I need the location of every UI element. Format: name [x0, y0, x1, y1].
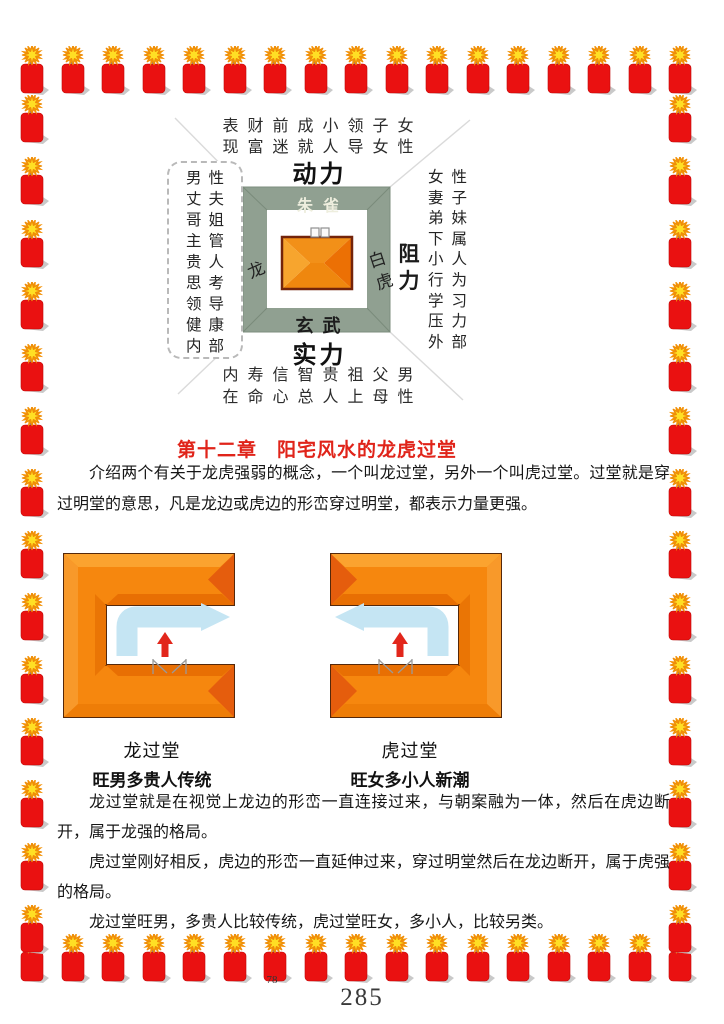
firecracker-icon [381, 46, 415, 96]
firecracker-icon [462, 46, 496, 96]
firecracker-icon [219, 934, 253, 984]
firecracker-icon [624, 934, 658, 984]
firecracker-icon [664, 593, 698, 643]
firecracker-icon [664, 282, 698, 332]
left-attributes-box: 男性 丈夫 哥姐 主管 贵人 思考 领导 健康 内部 [167, 161, 243, 359]
firecracker-icon [381, 934, 415, 984]
firecracker-icon [300, 46, 334, 96]
label-zuli: 阻力 [396, 241, 422, 295]
firecracker-icon [16, 157, 50, 207]
firecracker-icon [664, 344, 698, 394]
right-attribute: 下属 [420, 230, 472, 251]
right-attribute: 行为 [420, 271, 472, 292]
firecracker-icon [340, 934, 374, 984]
paragraph: 龙过堂旺男，多贵人比较传统，虎过堂旺女，多小人，比较另类。 [57, 908, 670, 938]
firecracker-icon [16, 95, 50, 145]
firecracker-icon [16, 282, 50, 332]
house-block [282, 237, 352, 289]
left-attribute: 领导 [169, 294, 241, 315]
left-attribute: 哥姐 [169, 210, 241, 231]
firecracker-icon [502, 46, 536, 96]
right-attribute: 弟妹 [420, 209, 472, 230]
left-attribute: 内部 [169, 336, 241, 357]
compass-bottom-text-line1: 内寿信智贵祖父男 [165, 361, 471, 385]
firecracker-icon [664, 157, 698, 207]
left-attribute: 思考 [169, 273, 241, 294]
right-attributes-list: 女性 妻子 弟妹 下属 小人 行为 学习 压力 外部 [420, 168, 472, 353]
firecracker-icon [583, 934, 617, 984]
firecracker-icon [583, 46, 617, 96]
firecracker-icon [340, 46, 374, 96]
dragon-passes-hall-figure [63, 553, 235, 718]
left-attribute: 贵人 [169, 252, 241, 273]
paragraph: 虎过堂刚好相反，虎边的形峦一直延伸过来，穿过明堂然后在龙边断开，属于虎强的格局。 [57, 848, 670, 908]
body-paragraph-block: 龙过堂就是在视觉上龙边的形峦一直连接过来，与朝案融为一体，然后在虎边断开，属于龙… [57, 788, 670, 938]
feng-shui-compass-diagram: 表财前成小领子女 现富迷就人导女性 动力 朱雀 龙 白虎 玄武 实力 助力 阻力… [165, 108, 485, 408]
firecracker-icon [664, 46, 698, 96]
figure-caption-tiger: 虎过堂 [324, 737, 496, 763]
firecracker-icon [138, 46, 172, 96]
left-attribute: 男性 [169, 168, 241, 189]
right-attribute: 学习 [420, 292, 472, 313]
firecracker-icon [57, 46, 91, 96]
firecracker-icon [219, 46, 253, 96]
firecracker-icon [178, 46, 212, 96]
firecracker-icon [300, 934, 334, 984]
paragraph: 龙过堂就是在视觉上龙边的形峦一直连接过来，与朝案融为一体，然后在虎边断开，属于龙… [57, 788, 670, 848]
firecracker-icon [178, 934, 212, 984]
firecracker-icon [16, 344, 50, 394]
right-attribute: 妻子 [420, 189, 472, 210]
firecracker-icon [16, 46, 50, 96]
firecracker-icon [664, 220, 698, 270]
firecracker-icon [138, 934, 172, 984]
left-attribute: 健康 [169, 315, 241, 336]
firecracker-icon [421, 934, 455, 984]
figure-caption-dragon: 龙过堂 [66, 737, 238, 763]
firecracker-icon [462, 934, 496, 984]
firecracker-icon [543, 46, 577, 96]
firecracker-icon [543, 934, 577, 984]
firecracker-icon [16, 656, 50, 706]
left-attribute: 丈夫 [169, 189, 241, 210]
right-attribute: 女性 [420, 168, 472, 189]
compass-bottom-text-line2: 在命心总人上母性 [165, 383, 471, 407]
firecracker-icon [16, 780, 50, 830]
firecracker-icon [502, 934, 536, 984]
firecracker-icon [16, 469, 50, 519]
firecracker-icon [16, 220, 50, 270]
firecracker-icon [664, 656, 698, 706]
right-attribute: 小人 [420, 250, 472, 271]
firecracker-icon [421, 46, 455, 96]
right-attribute: 外部 [420, 333, 472, 354]
firecracker-icon [16, 843, 50, 893]
firecracker-icon [624, 46, 658, 96]
firecracker-icon [664, 95, 698, 145]
firecracker-icon [664, 718, 698, 768]
firecracker-icon [57, 934, 91, 984]
page-number: 285 [0, 984, 724, 1012]
firecracker-icon [16, 407, 50, 457]
right-attribute: 压力 [420, 312, 472, 333]
firecracker-icon [664, 531, 698, 581]
left-attribute: 主管 [169, 231, 241, 252]
firecracker-icon [16, 593, 50, 643]
book-page: 表财前成小领子女 现富迷就人导女性 动力 朱雀 龙 白虎 玄武 实力 助力 阻力… [0, 0, 724, 1024]
firecracker-icon [97, 934, 131, 984]
intro-paragraph-block: 介绍两个有关于龙虎强弱的概念，一个叫龙过堂，另外一个叫虎过堂。过堂就是穿过明堂的… [57, 458, 670, 520]
firecracker-icon [16, 718, 50, 768]
tiger-passes-hall-figure [330, 553, 502, 718]
firecracker-icon [16, 531, 50, 581]
paragraph: 介绍两个有关于龙虎强弱的概念，一个叫龙过堂，另外一个叫虎过堂。过堂就是穿过明堂的… [57, 458, 670, 520]
firecracker-icon [259, 46, 293, 96]
firecracker-icon [664, 407, 698, 457]
firecracker-icon [16, 905, 50, 955]
firecracker-icon [97, 46, 131, 96]
